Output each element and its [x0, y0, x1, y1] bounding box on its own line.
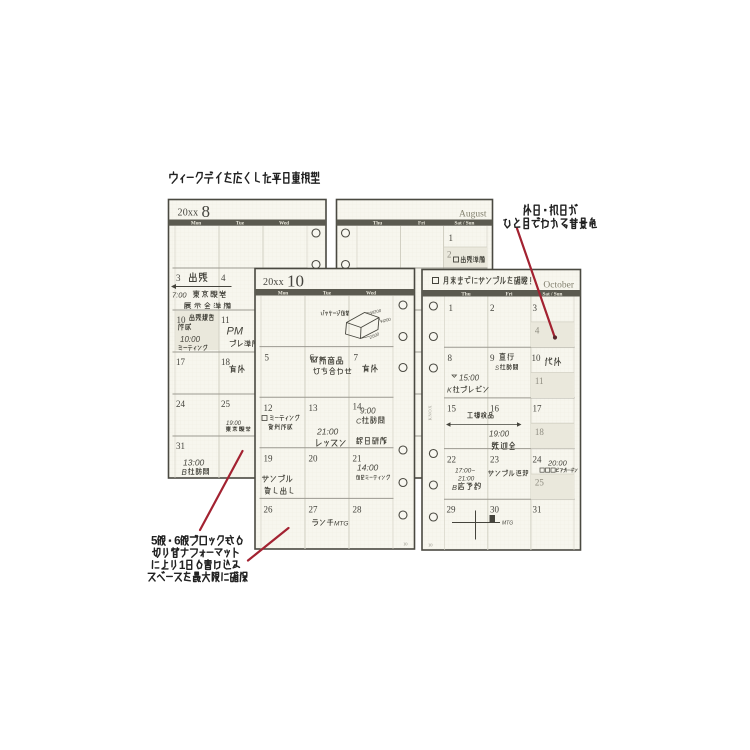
svg-text:17: 17	[176, 357, 186, 367]
svg-text:5: 5	[265, 353, 270, 363]
svg-text:Thu: Thu	[461, 291, 470, 297]
svg-text:11: 11	[535, 376, 544, 386]
svg-text:16: 16	[490, 404, 500, 414]
svg-text:24: 24	[176, 399, 186, 409]
svg-text:4: 4	[221, 273, 226, 283]
svg-text:19:00: 19:00	[226, 421, 242, 427]
svg-text:18: 18	[535, 427, 545, 437]
svg-text:10: 10	[428, 543, 433, 548]
svg-text:3: 3	[533, 303, 538, 313]
svg-text:Fri: Fri	[506, 291, 513, 297]
svg-text:18: 18	[221, 357, 231, 367]
svg-text:August: August	[459, 210, 487, 220]
svg-text:S: S	[495, 366, 499, 372]
svg-text:K: K	[447, 388, 452, 395]
svg-text:28: 28	[353, 505, 363, 515]
svg-text:10: 10	[532, 353, 542, 363]
svg-text:9: 9	[490, 353, 495, 363]
svg-text:15:00: 15:00	[459, 374, 480, 383]
svg-text:2: 2	[490, 303, 495, 313]
svg-text:1: 1	[179, 559, 186, 572]
svg-text:9:00: 9:00	[360, 407, 376, 416]
svg-text:B: B	[452, 483, 457, 492]
svg-text:17:00~: 17:00~	[455, 468, 475, 475]
svg-text:20xx: 20xx	[263, 277, 284, 288]
svg-text:20: 20	[309, 454, 319, 464]
svg-text:Sat / Sun: Sat / Sun	[455, 221, 475, 227]
svg-text:5: 5	[151, 535, 158, 548]
svg-text:20:00: 20:00	[547, 459, 568, 468]
svg-text:Tue: Tue	[236, 221, 245, 227]
svg-text:MTG: MTG	[334, 521, 348, 528]
svg-text:26: 26	[264, 505, 274, 515]
svg-text:24: 24	[533, 455, 543, 465]
svg-text:Wed: Wed	[366, 290, 376, 296]
svg-text:4: 4	[535, 325, 540, 335]
svg-text:10:00: 10:00	[180, 335, 201, 344]
svg-text:30: 30	[490, 505, 500, 515]
svg-text:MTG: MTG	[502, 521, 513, 527]
svg-text:Fri: Fri	[418, 221, 425, 227]
svg-text:October: October	[543, 281, 574, 291]
svg-text:B: B	[182, 468, 188, 477]
svg-text:2: 2	[447, 250, 452, 260]
svg-text:20xx: 20xx	[178, 208, 199, 219]
svg-text:29: 29	[447, 505, 457, 515]
svg-text:17: 17	[533, 404, 543, 414]
svg-text:19: 19	[264, 454, 274, 464]
svg-text:10: 10	[287, 272, 304, 291]
svg-text:1: 1	[449, 303, 454, 313]
svg-text:10: 10	[177, 315, 187, 325]
svg-text:27: 27	[309, 505, 319, 515]
svg-text:PM: PM	[227, 326, 244, 338]
svg-text:19:00: 19:00	[489, 430, 510, 439]
svg-text:Mon: Mon	[191, 221, 201, 227]
svg-text:13:00: 13:00	[183, 458, 205, 468]
svg-text:11: 11	[221, 315, 230, 325]
svg-text:Sat / Sun: Sat / Sun	[543, 291, 563, 297]
svg-text:10: 10	[403, 542, 408, 547]
svg-text:6: 6	[174, 535, 181, 548]
svg-text:Tue: Tue	[323, 290, 332, 296]
svg-text:8: 8	[448, 353, 453, 363]
svg-text:22: 22	[447, 455, 456, 465]
svg-text:Thu: Thu	[373, 221, 382, 227]
svg-text:KNOX: KNOX	[428, 405, 433, 421]
svg-text:7: 7	[354, 353, 359, 363]
svg-text:21:00: 21:00	[457, 476, 475, 483]
svg-text:C: C	[356, 417, 362, 426]
svg-text:Wed: Wed	[279, 221, 289, 227]
svg-text:21:00: 21:00	[316, 427, 339, 437]
svg-text:12: 12	[264, 403, 273, 413]
svg-text:25: 25	[535, 478, 545, 488]
svg-text:15: 15	[447, 404, 457, 414]
svg-text:13: 13	[309, 403, 319, 413]
svg-text:31: 31	[533, 505, 542, 515]
svg-text:14:00: 14:00	[357, 463, 379, 473]
svg-text:25: 25	[221, 399, 231, 409]
svg-text:3: 3	[176, 273, 181, 283]
svg-text:31: 31	[176, 441, 185, 451]
svg-text:7:00: 7:00	[172, 291, 187, 300]
svg-text:Mon: Mon	[278, 290, 288, 296]
svg-text:23: 23	[490, 455, 500, 465]
svg-text:1: 1	[449, 233, 454, 243]
svg-text:8: 8	[202, 202, 211, 221]
